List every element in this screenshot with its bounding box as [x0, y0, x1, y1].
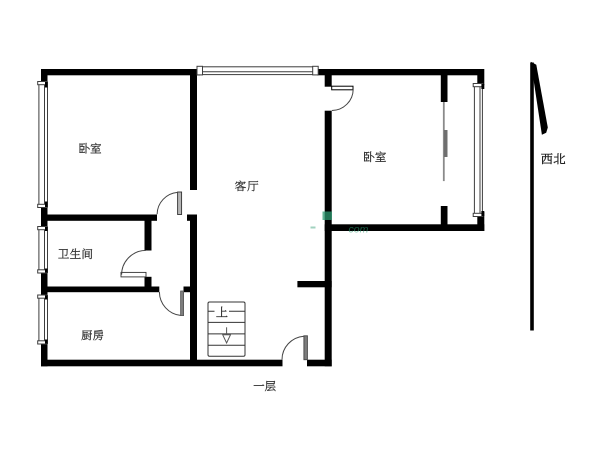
svg-text:com: com: [349, 224, 369, 236]
